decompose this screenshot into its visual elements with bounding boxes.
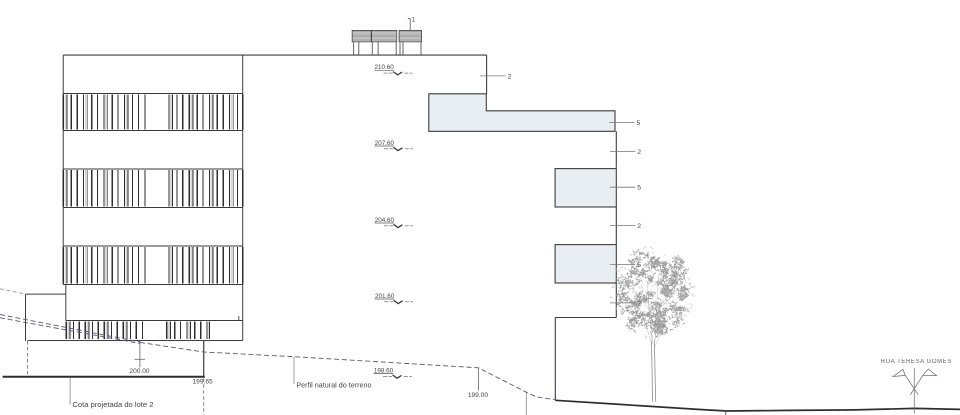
svg-text:199.00: 199.00 bbox=[468, 392, 489, 399]
svg-text:2: 2 bbox=[637, 300, 641, 307]
svg-text:2: 2 bbox=[508, 73, 512, 80]
svg-text:5: 5 bbox=[637, 262, 641, 269]
svg-text:1: 1 bbox=[412, 17, 416, 24]
svg-text:199.65: 199.65 bbox=[193, 378, 214, 385]
svg-text:RUA TERESA GOMES: RUA TERESA GOMES bbox=[881, 359, 952, 365]
svg-text:Perfil natural do terreno: Perfil natural do terreno bbox=[296, 380, 371, 389]
svg-text:200.00: 200.00 bbox=[129, 368, 150, 375]
svg-text:2: 2 bbox=[637, 149, 641, 156]
svg-text:5: 5 bbox=[637, 185, 641, 192]
svg-text:Cota projetada do lote 2: Cota projetada do lote 2 bbox=[72, 400, 153, 409]
svg-text:5: 5 bbox=[637, 120, 641, 127]
svg-text:2: 2 bbox=[637, 223, 641, 230]
